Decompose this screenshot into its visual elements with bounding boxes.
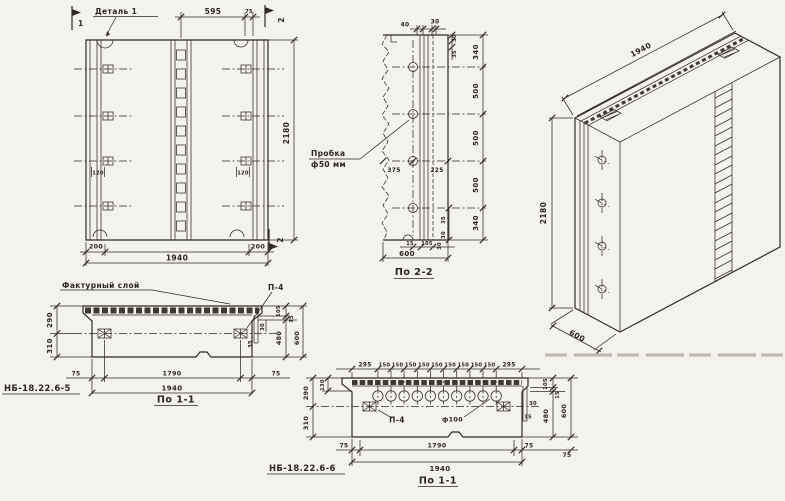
- dim-label-1790: 1790: [427, 442, 446, 450]
- dim-label-75-left: 75: [340, 444, 349, 450]
- detail-callout-label: Деталь 1: [95, 7, 137, 16]
- section-flag-2-top: [265, 5, 274, 27]
- dim-label-1940: 1940: [166, 254, 188, 263]
- dim-label-340a: 340: [472, 44, 480, 60]
- dim-label-225: 225: [430, 168, 443, 174]
- dim-label-600: 600: [560, 404, 568, 419]
- top-dim-150: 150: [471, 363, 483, 369]
- hole-leader: [464, 399, 490, 417]
- front-view: Деталь 1 1 2 2 595 75 120 120 200 200 19…: [72, 5, 298, 266]
- dim-label-500a: 500: [472, 83, 480, 99]
- flag-1-label: 1: [78, 19, 84, 28]
- anchor-box: [363, 402, 376, 411]
- mark-label: НБ-18.22.6-6: [269, 463, 336, 473]
- top-dim-295-right: 295: [502, 363, 515, 369]
- dim-label-15: 15: [555, 391, 561, 399]
- top-dim-295-left: 295: [358, 363, 371, 369]
- dim-label-595: 595: [205, 7, 222, 16]
- top-dim-150: 150: [431, 363, 443, 369]
- top-dim-150: 150: [392, 363, 404, 369]
- dim-label-600: 600: [399, 250, 415, 258]
- dim-label-2180: 2180: [282, 122, 291, 144]
- front-view-panel-linework: [74, 40, 284, 240]
- dim-label-75-left: 75: [72, 372, 81, 378]
- lifting-loop: [718, 47, 739, 58]
- plug-label-line1: Пробка: [311, 149, 345, 158]
- top-dim-150: 150: [457, 363, 469, 369]
- top-dim-150: 150: [418, 363, 430, 369]
- section-1-1-right-view: 295 150 150 150 150 150 150 150 150 150 …: [267, 363, 578, 487]
- dim-label-105: 105: [421, 241, 433, 247]
- iso-keyed-edge: [715, 83, 732, 282]
- detail-leader: [93, 17, 158, 37]
- iso-view: 1940 2180 600: [539, 12, 785, 355]
- detail-circles: [93, 40, 248, 237]
- section-2-2-view: Пробка ф50 мм 40 30 30 35 340 500 500 50…: [309, 20, 488, 279]
- iso-plug-holes: [595, 150, 609, 299]
- dim-label-75-right: 75: [272, 372, 281, 378]
- texture-layer-label: Фактурный слой: [62, 281, 140, 290]
- texture-layer-edges: [580, 121, 588, 315]
- keyed-edge: [382, 35, 389, 240]
- texture-leader: [60, 290, 230, 304]
- dim-label-1940: 1940: [430, 465, 451, 473]
- hole-diameter-label: ф100: [442, 416, 463, 424]
- iso-dim-1940: 1940: [629, 41, 653, 59]
- dim-label-500c: 500: [472, 177, 480, 193]
- dim-label-30: 30: [260, 323, 266, 331]
- dim-label-30: 30: [529, 401, 537, 407]
- hole-row: [373, 371, 502, 405]
- drawing-sheet: Деталь 1 1 2 2 595 75 120 120 200 200 19…: [0, 0, 785, 501]
- dim-label-75-top: 75: [245, 9, 253, 15]
- p4-label: П-4: [389, 416, 405, 425]
- iso-dim-600: 600: [568, 328, 587, 344]
- dim-label-30b2: 30: [441, 231, 447, 239]
- top-dim-150: 150: [444, 363, 456, 369]
- dim-label-105: 105: [276, 305, 282, 317]
- dim-label-35b: 35: [441, 216, 447, 224]
- section-2-2-title: По 2-2: [395, 267, 433, 278]
- dim-label-340b: 340: [472, 215, 480, 231]
- dim-label-15: 15: [406, 241, 414, 247]
- dim-label-75-far: 75: [563, 453, 572, 459]
- flag-2-top-label: 2: [277, 17, 286, 23]
- dim-label-600: 600: [293, 331, 301, 346]
- center-rib-ladder: [177, 50, 186, 231]
- dim-label-75-right: 75: [525, 444, 534, 450]
- iso-dim-2180: 2180: [539, 202, 548, 224]
- dim-label-35: 35: [524, 415, 532, 421]
- dim-label-290: 290: [46, 312, 54, 328]
- dim-label-120-left: 120: [92, 171, 104, 177]
- dim-label-500b: 500: [472, 130, 480, 146]
- section-1-1-left-view: Фактурный слой П-4 290 310 30 35 105 15 …: [2, 281, 307, 406]
- dim-label-30-top: 30: [431, 20, 440, 26]
- dim-label-375: 375: [387, 168, 400, 174]
- top-dim-150: 150: [484, 363, 496, 369]
- drawing-canvas: Деталь 1 1 2 2 595 75 120 120 200 200 19…: [0, 0, 785, 501]
- plug-label-line2: ф50 мм: [311, 160, 346, 169]
- dim-label-310: 310: [46, 338, 54, 354]
- bottom-notch: [403, 235, 413, 240]
- top-dim-150: 150: [379, 363, 391, 369]
- dim-label-35: 35: [248, 340, 254, 348]
- dim-label-310: 310: [302, 416, 310, 431]
- dim-label-30-bottom: 30: [437, 242, 443, 250]
- dim-label-105: 105: [543, 378, 549, 390]
- section-1-1-left-title: По 1-1: [157, 395, 195, 406]
- dim-label-480: 480: [542, 409, 550, 424]
- dim-label-35r: 35: [452, 50, 458, 58]
- dim-label-480: 480: [275, 331, 283, 346]
- dim-label-30r: 30: [452, 34, 458, 42]
- p4-label: П-4: [268, 283, 284, 292]
- dim-label-200-left: 200: [89, 243, 104, 251]
- dim-label-290: 290: [302, 386, 310, 401]
- section-2-2-linework: [382, 35, 486, 240]
- flag-2-bottom-label: 2: [276, 237, 285, 243]
- dim-label-40: 40: [401, 23, 410, 29]
- lifting-loop: [600, 110, 621, 121]
- anchor-marks: [103, 65, 251, 210]
- sec11R-linework: [306, 371, 540, 438]
- dim-label-1790: 1790: [162, 370, 181, 378]
- dim-label-15: 15: [289, 315, 295, 323]
- dim-label-1940: 1940: [162, 385, 183, 393]
- dim-label-130: 130: [320, 379, 326, 391]
- mark-label: НБ-18.22.6-5: [4, 383, 71, 393]
- dim-label-120-right: 120: [237, 171, 249, 177]
- top-dim-150: 150: [405, 363, 417, 369]
- section-1-1-right-title: По 1-1: [419, 476, 457, 487]
- dim-label-200-right: 200: [251, 243, 266, 251]
